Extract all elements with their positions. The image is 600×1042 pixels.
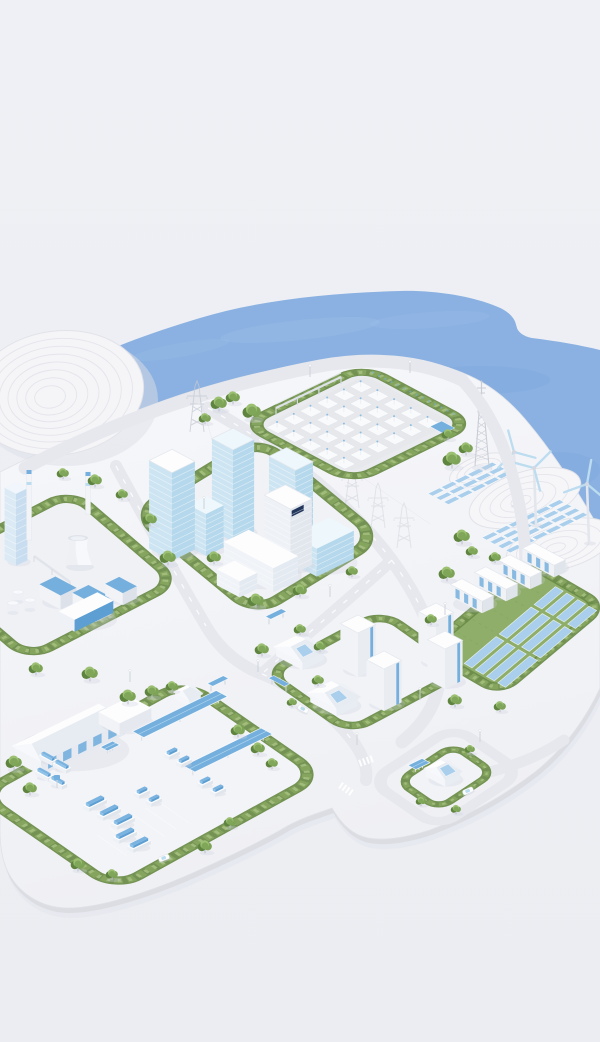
- insulator: [427, 416, 429, 418]
- insulator: [343, 457, 345, 459]
- insulator: [376, 389, 378, 391]
- chimney: [27, 470, 32, 540]
- insulator: [309, 439, 311, 441]
- insulator: [326, 448, 328, 450]
- insulator: [360, 414, 362, 416]
- insulator: [360, 432, 362, 434]
- insulator: [376, 406, 378, 408]
- apartment-tower: [427, 631, 466, 689]
- insulator: [360, 397, 362, 399]
- illustration-stage: Isometric smart city energy island: [0, 0, 600, 1042]
- storage-tank: [8, 601, 19, 615]
- insulator: [376, 440, 378, 442]
- insulator: [360, 380, 362, 382]
- insulator: [343, 405, 345, 407]
- insulator: [360, 449, 362, 451]
- insulator: [393, 398, 395, 400]
- insulator: [293, 413, 295, 415]
- insulator: [410, 424, 412, 426]
- storage-tank: [25, 598, 36, 612]
- glass-tower: [149, 449, 198, 560]
- insulator: [393, 415, 395, 417]
- insulator: [343, 423, 345, 425]
- insulator: [326, 431, 328, 433]
- insulator: [276, 421, 278, 423]
- insulator: [376, 423, 378, 425]
- insulator: [309, 405, 311, 407]
- smart-city-illustration: Isometric smart city energy island: [0, 0, 600, 1042]
- insulator: [293, 430, 295, 432]
- apartment-tower: [366, 651, 405, 711]
- insulator: [326, 397, 328, 399]
- insulator: [326, 414, 328, 416]
- insulator: [343, 440, 345, 442]
- insulator: [309, 422, 311, 424]
- insulator: [343, 388, 345, 390]
- insulator: [393, 432, 395, 434]
- insulator: [410, 407, 412, 409]
